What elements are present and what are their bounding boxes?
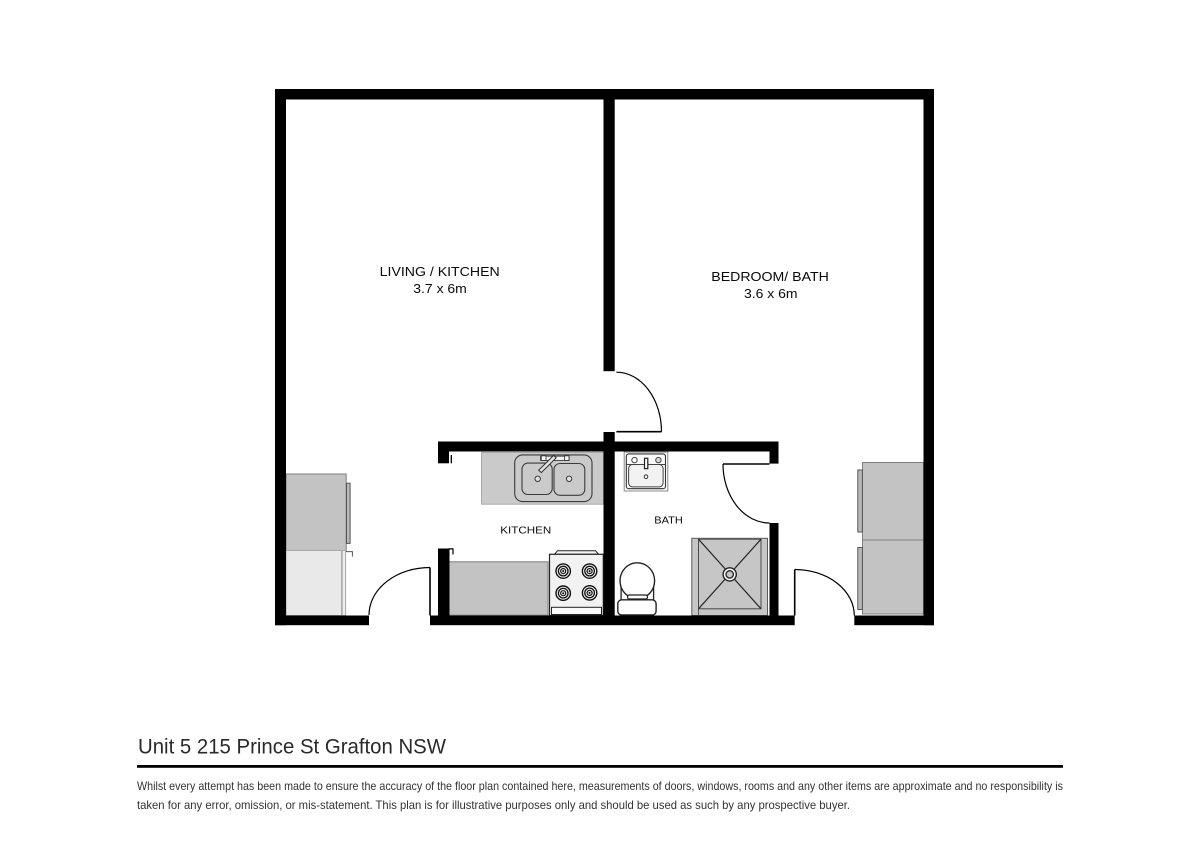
svg-text:taken for any error, omission,: taken for any error, omission, or mis-st… [137,799,850,812]
svg-text:BEDROOM/ BATH: BEDROOM/ BATH [711,269,829,284]
svg-text:3.7 x 6m: 3.7 x 6m [413,281,467,296]
svg-text:Whilst every attempt has been: Whilst every attempt has been made to en… [137,780,1063,793]
svg-text:KITCHEN: KITCHEN [500,526,551,537]
svg-text:LIVING / KITCHEN: LIVING / KITCHEN [380,264,500,279]
svg-text:3.6 x 6m: 3.6 x 6m [744,286,798,301]
svg-text:BATH: BATH [654,516,683,527]
svg-text:Unit 5 215 Prince St Grafton N: Unit 5 215 Prince St Grafton NSW [138,735,447,759]
